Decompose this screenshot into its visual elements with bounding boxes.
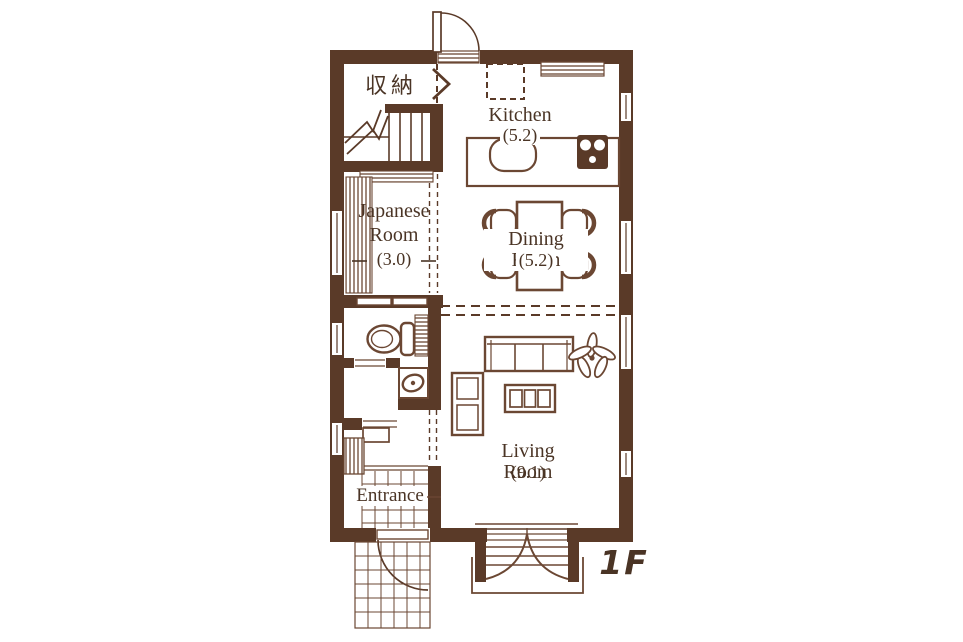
room-size-living: (9.1) xyxy=(478,463,578,482)
washbasin-icon xyxy=(399,368,428,398)
window-post xyxy=(568,537,579,582)
room-label-entrance: Entrance xyxy=(350,486,430,506)
floor-label: 1F xyxy=(594,546,654,581)
sliding-door-icon xyxy=(355,360,397,427)
window-post xyxy=(475,537,486,582)
room-label-kitchen: Kitchen xyxy=(470,105,570,126)
back-door-arc-icon xyxy=(441,13,479,51)
shoe-cabinet-stripes xyxy=(344,438,364,474)
shelf-icon xyxy=(452,373,483,435)
sofa-icon xyxy=(485,337,573,371)
stairs-icon xyxy=(344,110,422,161)
plant-icon xyxy=(567,332,617,378)
window-icon xyxy=(620,92,632,122)
window-icon xyxy=(331,210,343,276)
room-label-entrance-text: Entrance xyxy=(353,486,427,506)
back-door-threshold-stripes xyxy=(438,51,479,63)
room-size-japanese: (3.0) xyxy=(344,250,444,269)
toilet-icon xyxy=(368,323,415,355)
window-icon xyxy=(331,322,343,356)
deck-icon xyxy=(472,557,583,593)
window-icon xyxy=(620,220,632,275)
room-size-dining-text: (5.2) xyxy=(516,251,557,270)
room-size-dining: (5.2) xyxy=(484,251,588,270)
curtained-window-icon xyxy=(475,524,579,582)
toilet-bottom-wall-left xyxy=(344,358,354,368)
back-door xyxy=(433,12,479,63)
tv-board-icon xyxy=(505,385,555,412)
kitchen-back-counter-stripes xyxy=(541,62,604,76)
room-size-kitchen: (5.2) xyxy=(470,126,570,145)
room-label-japanese-line1: Japanese xyxy=(344,201,444,222)
gas-stove-icon xyxy=(577,135,608,169)
wall-top-left xyxy=(330,50,437,64)
corridor-wall-upper xyxy=(428,308,441,410)
back-door-leaf xyxy=(433,12,441,52)
hall-wall-stub xyxy=(344,418,362,430)
washing-machine-icon xyxy=(363,428,389,442)
room-label-storage: 収納 xyxy=(341,74,441,97)
toilet-door xyxy=(415,315,428,356)
window-icon xyxy=(331,422,343,456)
stairs-bottom-wall xyxy=(344,161,443,172)
room-size-kitchen-text: (5.2) xyxy=(500,126,541,145)
porch-tile-grid-icon xyxy=(355,542,430,628)
living-furniture xyxy=(452,332,617,435)
refrigerator-space-icon xyxy=(487,64,524,99)
floor-plan-canvas: 収納 Kitchen (5.2) Japanese Room (3.0) Din… xyxy=(0,0,963,642)
toilet-bottom-wall-right xyxy=(386,358,400,368)
entrance-door-leaf xyxy=(377,530,428,539)
room-label-japanese-line2: Room xyxy=(344,225,444,246)
window-icon xyxy=(620,450,632,478)
window-icon xyxy=(620,314,632,370)
floor-plan-drawing xyxy=(0,0,963,642)
